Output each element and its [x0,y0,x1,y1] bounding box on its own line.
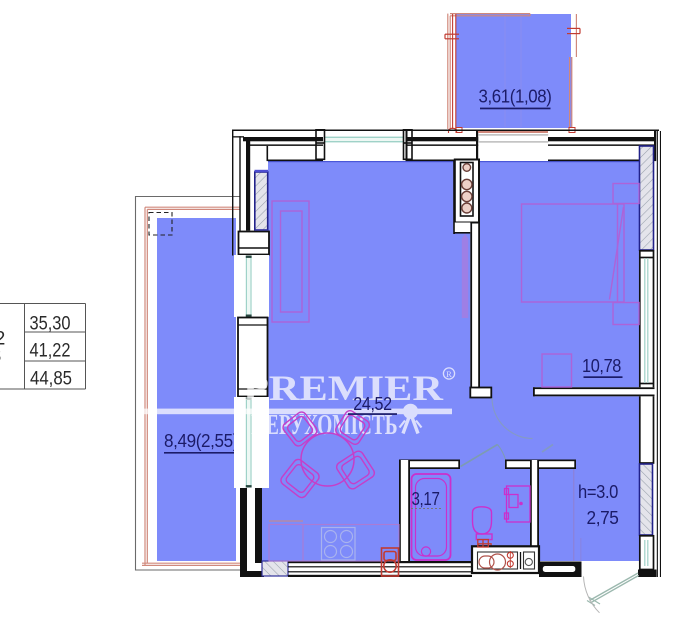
svg-text:h=3.0: h=3.0 [578,482,618,502]
svg-text:3: 3 [0,346,1,367]
svg-text:44,85: 44,85 [30,369,72,390]
svg-text:41,22: 41,22 [30,341,71,362]
svg-text:24,52: 24,52 [353,394,392,414]
svg-text:R: R [446,369,452,379]
svg-text:3,17: 3,17 [412,489,440,509]
svg-text:PREMIER: PREMIER [243,368,444,408]
svg-text:10,78: 10,78 [582,356,621,376]
svg-text:8,49(2,55): 8,49(2,55) [164,431,238,451]
svg-text:3,61(1,08): 3,61(1,08) [479,87,552,107]
svg-text:35,30: 35,30 [30,314,71,335]
svg-text:2,75: 2,75 [587,508,619,528]
